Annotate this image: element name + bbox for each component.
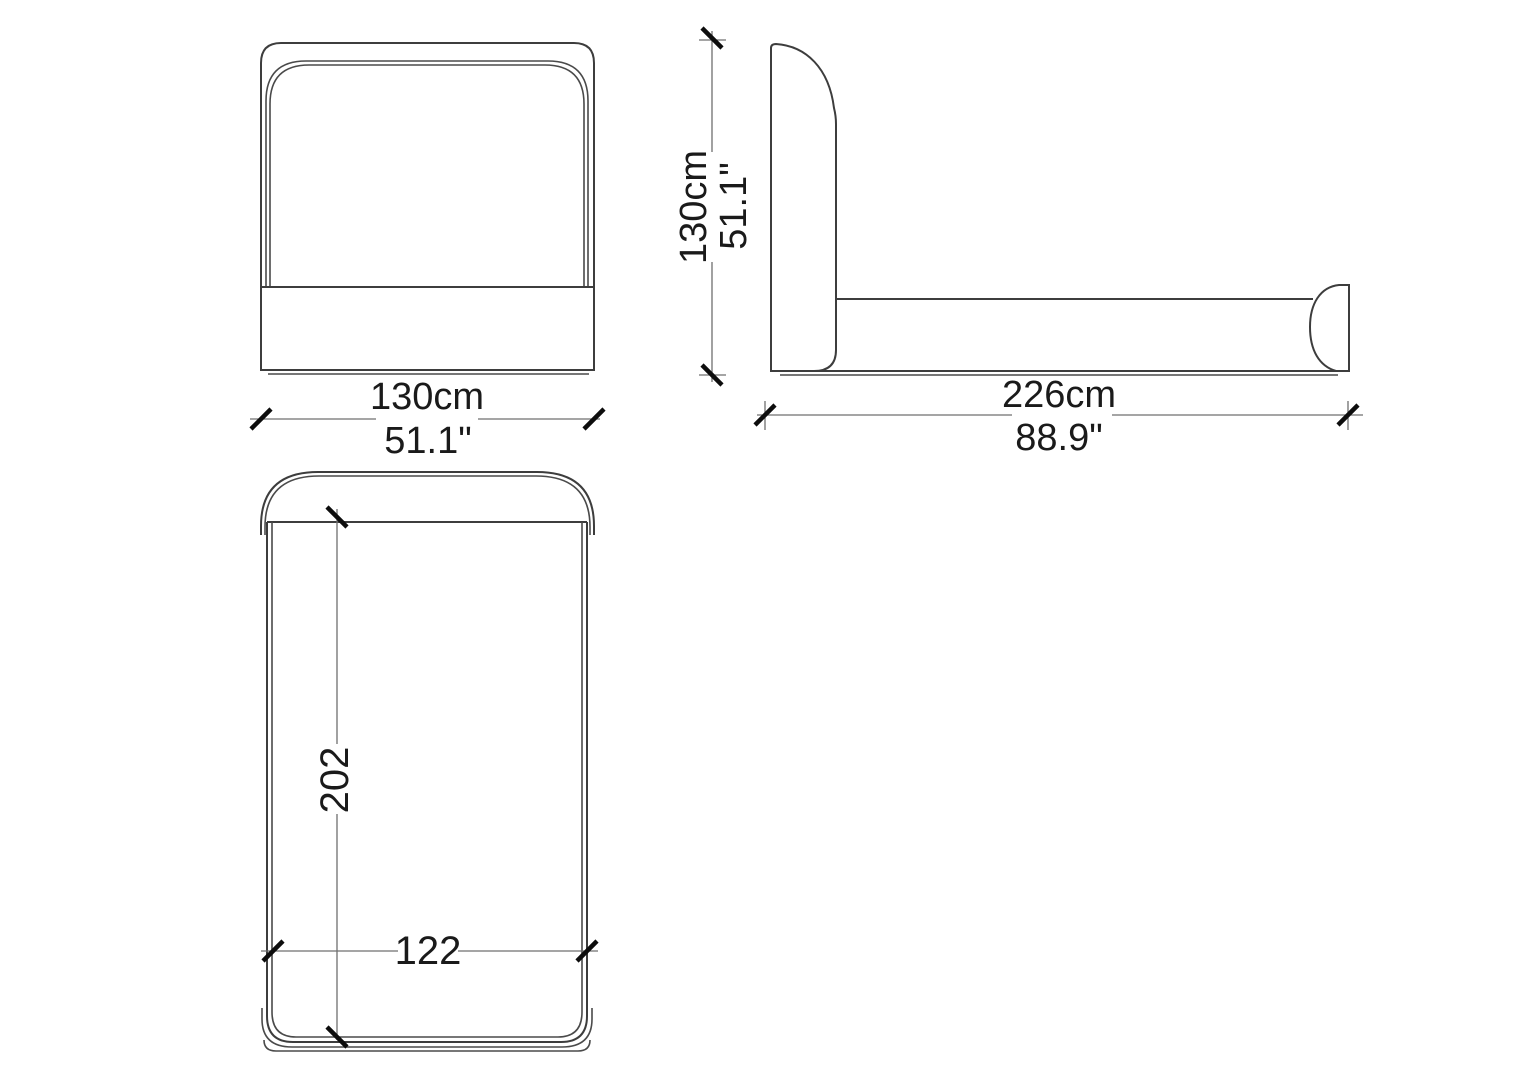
top-width-label: 122 <box>395 931 462 971</box>
top-headboard-arc-outer <box>261 472 594 535</box>
top-length-label: 202 <box>315 747 355 814</box>
front-headboard-inner-outline-2 <box>270 65 584 288</box>
front-width-label-inches: 51.1" <box>384 422 471 460</box>
front-width-label-cm: 130cm <box>370 378 484 416</box>
side-view-drawing <box>699 28 1363 430</box>
front-headboard-inner-outline-1 <box>266 61 588 288</box>
front-view-drawing <box>250 43 604 429</box>
front-base-outline <box>261 287 594 370</box>
side-footboard-outline <box>1310 285 1349 371</box>
side-headboard-outline <box>771 44 836 371</box>
top-headboard-arc-inner <box>265 476 590 535</box>
side-height-label-cm: 130cm <box>675 150 713 264</box>
bed-technical-drawing: 130cm 51.1" 130cm 51.1" 226cm 88.9" 202 … <box>0 0 1528 1080</box>
side-height-label-inches: 51.1" <box>715 162 753 249</box>
side-length-label-inches: 88.9" <box>1015 419 1102 457</box>
side-length-label-cm: 226cm <box>1002 376 1116 414</box>
front-headboard-outer-outline <box>261 43 594 288</box>
drawing-linework <box>0 0 1528 1080</box>
